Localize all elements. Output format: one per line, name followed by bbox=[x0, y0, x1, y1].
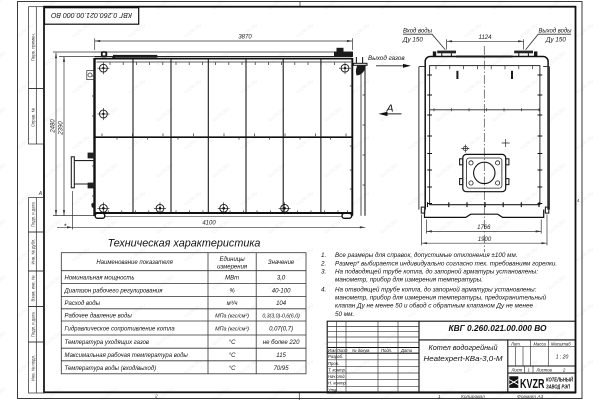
svg-text:м³/ч: м³/ч bbox=[227, 301, 238, 307]
svg-text:Техническая характеристика: Техническая характеристика bbox=[108, 237, 261, 249]
svg-text:°С: °С bbox=[229, 340, 236, 346]
svg-text:Подп. и дата: Подп. и дата bbox=[30, 202, 35, 227]
svg-text:1 : 20: 1 : 20 bbox=[556, 355, 569, 361]
svg-text:На отводящей трубе котла, до з: На отводящей трубе котла, до запорной ар… bbox=[335, 285, 537, 293]
svg-text:1.: 1. bbox=[321, 252, 326, 259]
svg-text:манометр, прибор для измерения: манометр, прибор для измерения температу… bbox=[335, 276, 483, 284]
svg-text:Листов: Листов bbox=[536, 367, 553, 372]
svg-text:Heatexpert-КВа-3,0-М: Heatexpert-КВа-3,0-М bbox=[424, 356, 503, 363]
svg-text:Расход воды: Расход воды bbox=[65, 301, 101, 307]
svg-text:Диапазон рабочего регулировани: Диапазон рабочего регулирования bbox=[64, 289, 164, 295]
svg-text:Выход газов: Выход газов bbox=[368, 54, 405, 62]
svg-text:4.: 4. bbox=[321, 286, 326, 293]
svg-text:50 мм.: 50 мм. bbox=[335, 311, 354, 318]
svg-text:МВт: МВт bbox=[225, 276, 239, 282]
svg-text:4100: 4100 bbox=[202, 221, 216, 227]
svg-text:Справ. №: Справ. № bbox=[30, 107, 35, 127]
svg-text:2: 2 bbox=[154, 394, 158, 400]
svg-text:3870: 3870 bbox=[238, 35, 252, 41]
svg-text:Инв. № подл.: Инв. № подл. bbox=[30, 355, 35, 381]
svg-text:Температура уходящих газов: Температура уходящих газов bbox=[65, 340, 150, 346]
svg-text:ЗАВОД РЭП: ЗАВОД РЭП bbox=[546, 384, 570, 390]
svg-text:104: 104 bbox=[276, 301, 287, 307]
svg-text:КОТЕЛЬНЫЙ: КОТЕЛЬНЫЙ bbox=[546, 375, 573, 383]
svg-text:0,07(0,7): 0,07(0,7) bbox=[269, 327, 293, 333]
svg-text:Н. контр.: Н. контр. bbox=[328, 381, 347, 386]
svg-text:Разраб.: Разраб. bbox=[328, 354, 343, 359]
svg-text:Лит.: Лит. bbox=[510, 341, 521, 346]
svg-text:МПа (кгс/см²): МПа (кгс/см²) bbox=[215, 327, 249, 333]
svg-text:0,3(3,0)-0,6(6,0): 0,3(3,0)-0,6(6,0) bbox=[262, 313, 300, 319]
svg-text:Ду 150: Ду 150 bbox=[545, 37, 566, 44]
svg-text:Температура воды (вход/выход): Температура воды (вход/выход) bbox=[65, 366, 157, 372]
svg-text:Номинальная мощность: Номинальная мощность bbox=[65, 276, 135, 282]
svg-text:1124: 1124 bbox=[479, 35, 493, 41]
svg-text:На подводящей трубе котла, до: На подводящей трубе котла, до запорной а… bbox=[335, 267, 538, 275]
svg-text:Т. контр.: Т. контр. bbox=[328, 367, 346, 372]
svg-text:KVZR: KVZR bbox=[520, 376, 545, 391]
svg-text:2480: 2480 bbox=[51, 119, 57, 134]
svg-text:КВГ 0.260.021.00.000 ВО: КВГ 0.260.021.00.000 ВО bbox=[449, 323, 547, 333]
svg-text:Гидравлическое сопротивление к: Гидравлическое сопротивление котла bbox=[65, 327, 176, 333]
svg-text:Взам. инв. №: Взам. инв. № bbox=[30, 275, 35, 301]
svg-text:не более 220: не более 220 bbox=[263, 340, 300, 346]
svg-text:Дата: Дата bbox=[400, 348, 413, 353]
svg-text:°С: °С bbox=[229, 353, 236, 359]
svg-text:МПа (кгс/см²): МПа (кгс/см²) bbox=[215, 313, 249, 319]
svg-text:Формат А3: Формат А3 bbox=[517, 394, 544, 400]
svg-text:Масса: Масса bbox=[534, 341, 547, 346]
svg-text:%: % bbox=[229, 289, 235, 295]
svg-text:манометр, прибор для измерения: манометр, прибор для измерения температу… bbox=[335, 294, 547, 302]
svg-text:1: 1 bbox=[528, 367, 530, 372]
svg-text:Нач.отд.: Нач.отд. bbox=[328, 374, 346, 379]
svg-text:Подп. и дата: Подп. и дата bbox=[30, 312, 35, 337]
svg-text:Котел водогрейный: Котел водогрейный bbox=[429, 344, 498, 352]
svg-text:°С: °С bbox=[229, 366, 236, 372]
svg-text:*: * bbox=[64, 224, 67, 231]
svg-text:Максимальная рабочая температу: Максимальная рабочая температура воды bbox=[65, 353, 189, 359]
svg-text:70/95: 70/95 bbox=[274, 366, 290, 372]
svg-text:Изм Лист: Изм Лист bbox=[328, 348, 348, 353]
svg-text:Лист: Лист bbox=[511, 367, 523, 372]
svg-text:3,0: 3,0 bbox=[277, 276, 286, 282]
svg-text:Утв.: Утв. bbox=[328, 387, 338, 392]
svg-text:клапан Ду не менее 50 и обвод: клапан Ду не менее 50 и обвод с обратным… bbox=[335, 302, 533, 310]
svg-text:Инв. № дубл.: Инв. № дубл. bbox=[30, 239, 35, 265]
svg-text:1900: 1900 bbox=[478, 237, 492, 243]
svg-text:2.: 2. bbox=[320, 260, 326, 267]
svg-text:Наименование показателя: Наименование показателя bbox=[96, 260, 173, 266]
svg-text:Копировал: Копировал bbox=[461, 394, 485, 400]
svg-text:№ докум.: № докум. bbox=[352, 348, 370, 353]
svg-text:115: 115 bbox=[276, 353, 286, 359]
svg-text:Значение: Значение bbox=[268, 260, 295, 266]
svg-text:Ду 150: Ду 150 bbox=[402, 37, 423, 44]
svg-text:2390: 2390 bbox=[59, 121, 65, 136]
svg-text:Перв. примен.: Перв. примен. bbox=[30, 33, 35, 61]
svg-text:Рабочее давление воды: Рабочее давление воды bbox=[65, 313, 133, 319]
svg-text:Единицы: Единицы bbox=[220, 257, 246, 263]
svg-text:Масштаб: Масштаб bbox=[551, 341, 571, 346]
svg-text:КВГ 0.260.021.00.000 ВО: КВГ 0.260.021.00.000 ВО bbox=[50, 11, 132, 18]
svg-text:измерения: измерения bbox=[217, 265, 248, 271]
svg-text:40-100: 40-100 bbox=[272, 289, 291, 295]
svg-text:1: 1 bbox=[438, 394, 441, 400]
svg-text:Все размеры для справок, допус: Все размеры для справок, допустимые откл… bbox=[335, 251, 518, 259]
svg-text:А: А bbox=[38, 191, 43, 197]
svg-text:Размер* выбирается индивидуаль: Размер* выбирается индивидуально согласн… bbox=[335, 259, 557, 267]
svg-text:Подп.: Подп. bbox=[381, 348, 392, 353]
svg-text:Выход воды: Выход воды bbox=[539, 27, 572, 35]
svg-text:1766: 1766 bbox=[477, 225, 491, 231]
svg-text:Пров.: Пров. bbox=[328, 361, 339, 366]
svg-text:3.: 3. bbox=[321, 268, 326, 275]
svg-text:Вход воды: Вход воды bbox=[403, 27, 432, 35]
